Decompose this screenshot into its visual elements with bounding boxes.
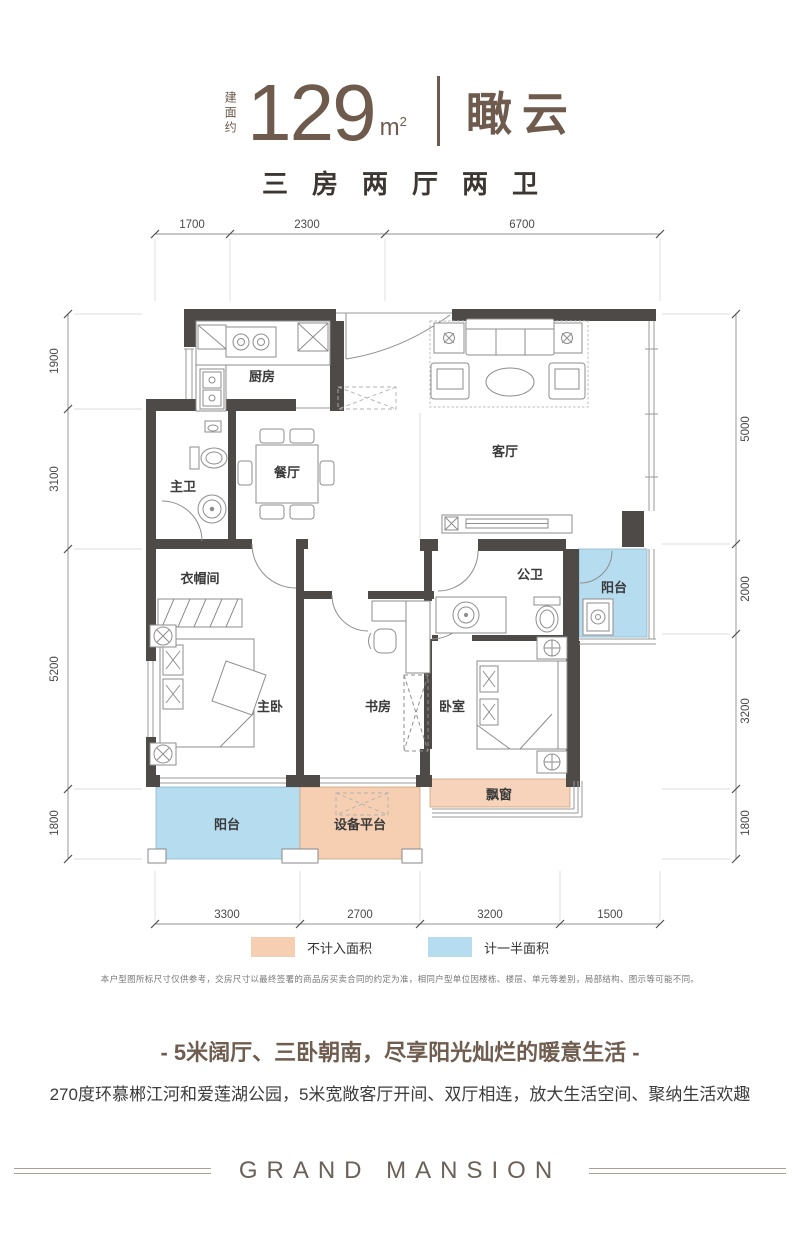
room-label-bay-window: 飘窗 [486,787,512,802]
dim-top-1: 2300 [294,219,320,231]
dim-left-1: 3100 [49,466,61,492]
master-bath-fixtures [190,421,227,523]
study-door [332,595,368,631]
disclaimer-text: 本户型图所标尺寸仅供参考，交房尺寸以最终签署的商品房买卖合同的约定为准，相同户型… [0,973,800,985]
dim-right-3: 1800 [740,810,752,836]
kitchen-fixtures [196,321,330,411]
dim-bottom-2: 3200 [477,909,503,921]
unit-name: 瞰云 [466,78,578,144]
dim-left-0: 1900 [49,348,61,374]
living-furniture [430,319,588,533]
legend: 不计入面积 计一半面积 [0,937,800,957]
dim-right-1: 2000 [740,576,752,602]
room-label-kitchen: 厨房 [249,369,275,384]
area-unit-letter: m [380,114,400,141]
dim-right-2: 3200 [740,698,752,724]
master-bath-door [162,501,202,541]
room-label-bedroom: 卧室 [439,699,465,714]
room-label-master-bedroom: 主卧 [257,699,283,714]
area-unit: m2 [380,114,407,142]
legend-label-half-area: 计一半面积 [484,938,549,957]
area-value: 129 [247,80,374,146]
dim-left-2: 5200 [49,656,61,682]
footer-decor-line-left [14,1168,211,1174]
legend-item-half-area: 计一半面积 [428,937,549,957]
dim-bottom-3: 1500 [597,909,623,921]
brand-name: GRAND MANSION [239,1157,561,1185]
room-label-living: 客厅 [492,444,518,459]
room-label-study: 书房 [365,699,391,714]
layout-summary: 三房两厅两卫 [0,164,800,201]
dim-bottom-1: 2700 [347,909,373,921]
cloakroom-door [252,544,296,588]
public-bath-fixtures [436,597,560,633]
dim-top-0: 1700 [179,219,205,231]
room-label-balcony-right: 阳台 [601,580,627,595]
legend-item-no-area: 不计入面积 [251,937,372,957]
area-prefix-label: 建面约 [222,91,239,136]
dim-top-2: 6700 [509,219,535,231]
washing-machine [583,599,613,635]
room-label-master-bath: 主卫 [170,479,196,494]
bedroom-furniture [477,637,567,773]
title-row: 建面约 129 m2 瞰云 [0,76,800,146]
floor-plan: 1700 2300 6700 1900 3100 5200 1800 5000 … [0,209,800,935]
room-label-equipment: 设备平台 [334,817,386,832]
header: 建面约 129 m2 瞰云 三房两厅两卫 [0,0,800,201]
area-unit-sup: 2 [400,114,407,129]
title-divider [437,76,440,146]
public-bath-door [438,551,478,591]
dim-left-3: 1800 [49,810,61,836]
room-label-balcony-bottom: 阳台 [214,817,240,832]
footer: GRAND MANSION [0,1157,800,1185]
study-furniture [369,601,431,751]
legend-label-no-area: 不计入面积 [307,938,372,957]
footer-decor-line-right [589,1168,786,1174]
master-bedroom-furniture [150,599,266,765]
dim-right-0: 5000 [740,416,752,442]
description: 270度环慕郴江河和爱莲湖公园，5米宽敞客厅开间、双厅相连，放大生活空间、聚纳生… [0,1080,800,1105]
tagline: - 5米阔厅、三卧朝南，尽享阳光灿烂的暖意生活 - [0,1035,800,1067]
room-label-cloakroom: 衣帽间 [180,571,219,586]
dim-bottom-0: 3300 [214,909,240,921]
legend-swatch-half-area [428,937,472,957]
room-label-dining: 餐厅 [273,465,300,480]
legend-swatch-no-area [251,937,295,957]
floor-plan-container: 1700 2300 6700 1900 3100 5200 1800 5000 … [0,209,800,935]
room-label-public-bath: 公卫 [517,567,543,582]
